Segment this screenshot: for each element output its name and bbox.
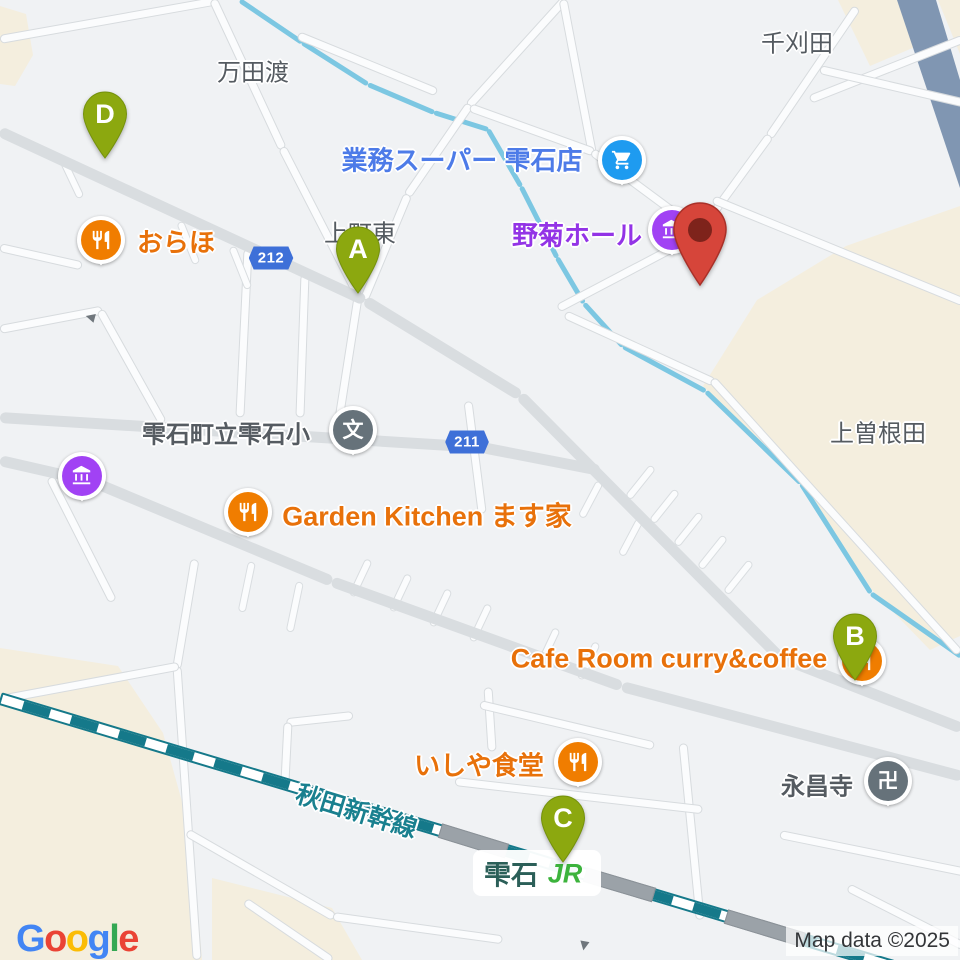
google-logo-letter: g — [88, 918, 110, 960]
google-logo-letter: l — [109, 918, 118, 960]
district-label-kami-soneda: 上曽根田 — [830, 414, 926, 449]
poi-label-ishiya-shokudo[interactable]: いしや食堂 — [414, 746, 544, 783]
marker-letter: C — [553, 803, 573, 833]
museum-glyph-icon — [62, 456, 102, 496]
poi-label-garden-kitchen[interactable]: Garden Kitchen ます家 — [282, 495, 572, 534]
poi-label-eishoji[interactable]: 永昌寺 — [781, 767, 853, 802]
marker-letter: B — [845, 621, 865, 651]
poi-label-cafe-room[interactable]: Cafe Room curry&coffee — [511, 644, 828, 675]
route-shield-211: 211 — [445, 431, 489, 454]
road-direction-arrow-icon: ▶ — [578, 940, 591, 951]
ishiya-shokudo-restaurant-icon[interactable] — [554, 738, 602, 800]
route-shield-212: 212 — [249, 247, 294, 270]
garden-kitchen-restaurant-icon[interactable] — [224, 488, 272, 550]
google-logo[interactable]: Google — [16, 918, 138, 960]
district-label-mandatawatari: 万田渡 — [217, 53, 289, 88]
google-logo-letter: G — [16, 918, 44, 960]
marker-letter: A — [348, 234, 368, 264]
poi-label-nogiku-hall[interactable]: 野菊ホール — [512, 216, 642, 253]
restaurant-glyph-icon — [558, 742, 598, 782]
poi-label-gyomu-super[interactable]: 業務スーパー 雫石店 — [342, 141, 583, 178]
station-name-label[interactable]: 雫石 — [484, 854, 538, 893]
google-map[interactable]: Google Map data ©2025 ▶▶万田渡千刈田上町東上曽根田業務ス… — [0, 0, 960, 960]
marker-pin-D[interactable]: D — [79, 90, 131, 165]
poi-label-oraho[interactable]: おらほ — [137, 223, 215, 260]
google-logo-letter: o — [44, 918, 66, 960]
destination-marker-pin[interactable] — [668, 200, 732, 293]
beige-area — [0, 6, 33, 86]
temple-glyph-icon: 卍 — [868, 761, 908, 801]
cart-glyph-icon — [602, 140, 642, 180]
school-glyph-icon: 文 — [333, 410, 373, 450]
marker-pin-B[interactable]: B — [829, 612, 881, 687]
district-label-senkarida: 千刈田 — [761, 24, 833, 59]
google-logo-letter: o — [66, 918, 88, 960]
gyomu-super-cart-icon[interactable] — [598, 136, 646, 198]
restaurant-glyph-icon — [81, 220, 121, 260]
museum-museum-icon[interactable] — [58, 452, 106, 514]
eishoji-temple-icon[interactable]: 卍 — [864, 757, 912, 819]
marker-pin-C[interactable]: C — [537, 794, 589, 869]
marker-letter: D — [95, 99, 115, 129]
poi-label-shizukuishi-elementary[interactable]: 雫石町立雫石小 — [142, 415, 310, 450]
map-attribution: Map data ©2025 — [786, 926, 958, 956]
oraho-restaurant-icon[interactable] — [77, 216, 125, 278]
shizukuishi-elementary-school-icon[interactable]: 文 — [329, 406, 377, 468]
marker-pin-A[interactable]: A — [332, 225, 384, 300]
google-logo-letter: e — [118, 918, 138, 960]
restaurant-glyph-icon — [228, 492, 268, 532]
